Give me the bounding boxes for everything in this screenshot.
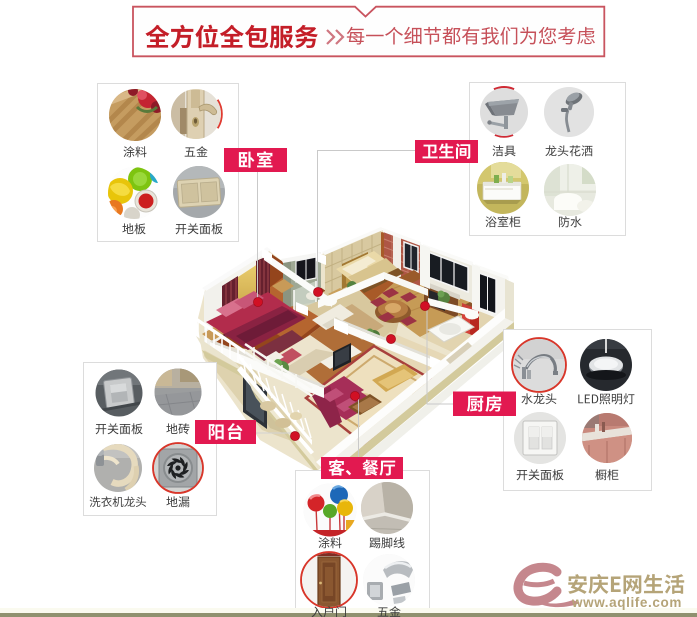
svg-text:www.aqlife.com: www.aqlife.com [571, 595, 682, 610]
